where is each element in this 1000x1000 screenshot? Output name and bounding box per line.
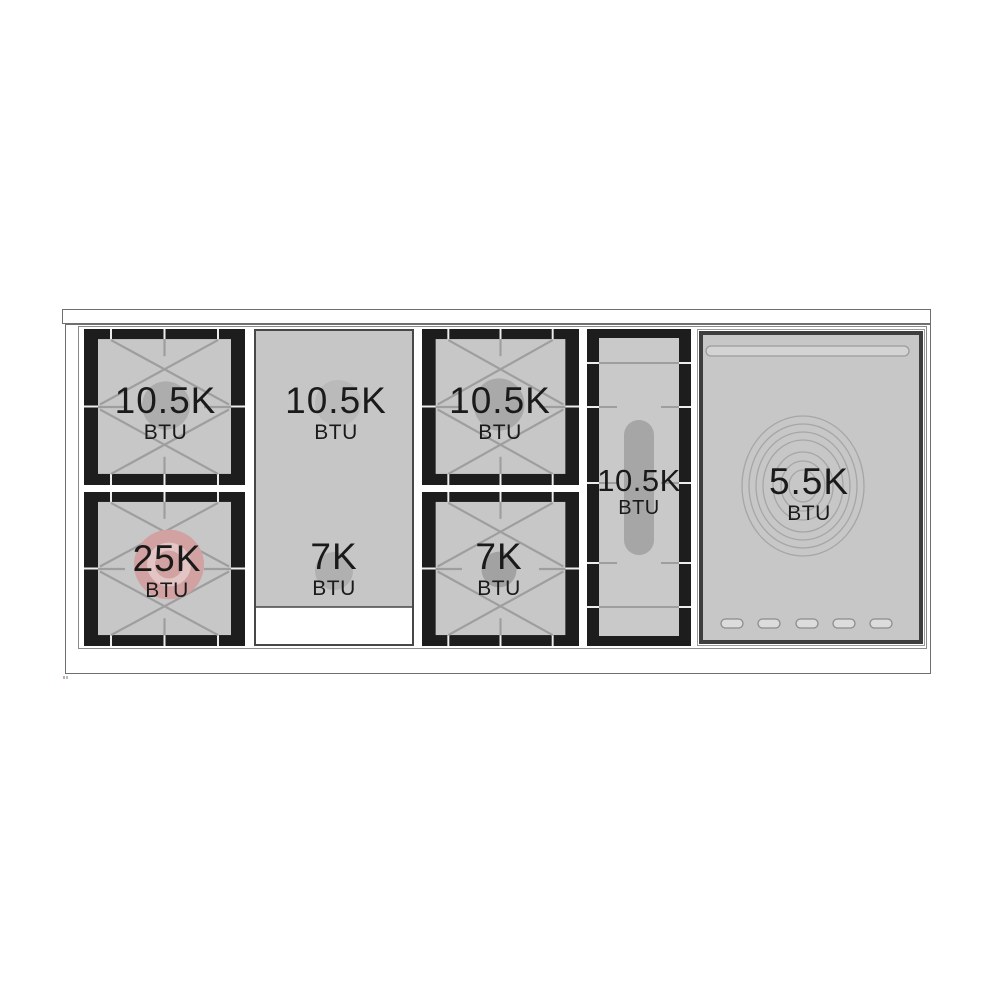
btu-unit: BTU <box>475 578 522 599</box>
btu-label-center-front: 7K BTU <box>475 538 522 599</box>
btu-label-griddle-front: 7K BTU <box>310 538 357 599</box>
btu-label-oval: 10.5K BTU <box>597 465 681 518</box>
back-rail <box>62 309 931 324</box>
btu-unit: BTU <box>769 503 849 524</box>
btu-unit: BTU <box>449 422 551 443</box>
btu-unit: BTU <box>597 498 681 518</box>
btu-unit: BTU <box>285 422 387 443</box>
btu-value: 5.5K <box>769 463 849 500</box>
btu-value: 10.5K <box>449 382 551 419</box>
btu-value: 7K <box>310 538 357 575</box>
btu-label-left-rear: 10.5K BTU <box>115 382 217 443</box>
range-cooktop-diagram: 10.5K BTU 25K BTU 10.5K BTU 7K BTU 10.5K… <box>0 0 1000 1000</box>
btu-value: 10.5K <box>285 382 387 419</box>
btu-label-griddle-rear: 10.5K BTU <box>285 382 387 443</box>
btu-value: 25K <box>133 540 202 577</box>
btu-value: 10.5K <box>115 382 217 419</box>
french-top-slot <box>706 346 909 356</box>
btu-unit: BTU <box>310 578 357 599</box>
btu-value: 7K <box>475 538 522 575</box>
btu-label-left-front: 25K BTU <box>133 540 202 601</box>
btu-unit: BTU <box>133 580 202 601</box>
corner-artifact <box>63 676 68 679</box>
btu-label-center-rear: 10.5K BTU <box>449 382 551 443</box>
btu-label-french-top: 5.5K BTU <box>769 463 849 524</box>
btu-unit: BTU <box>115 422 217 443</box>
btu-value: 10.5K <box>597 465 681 496</box>
